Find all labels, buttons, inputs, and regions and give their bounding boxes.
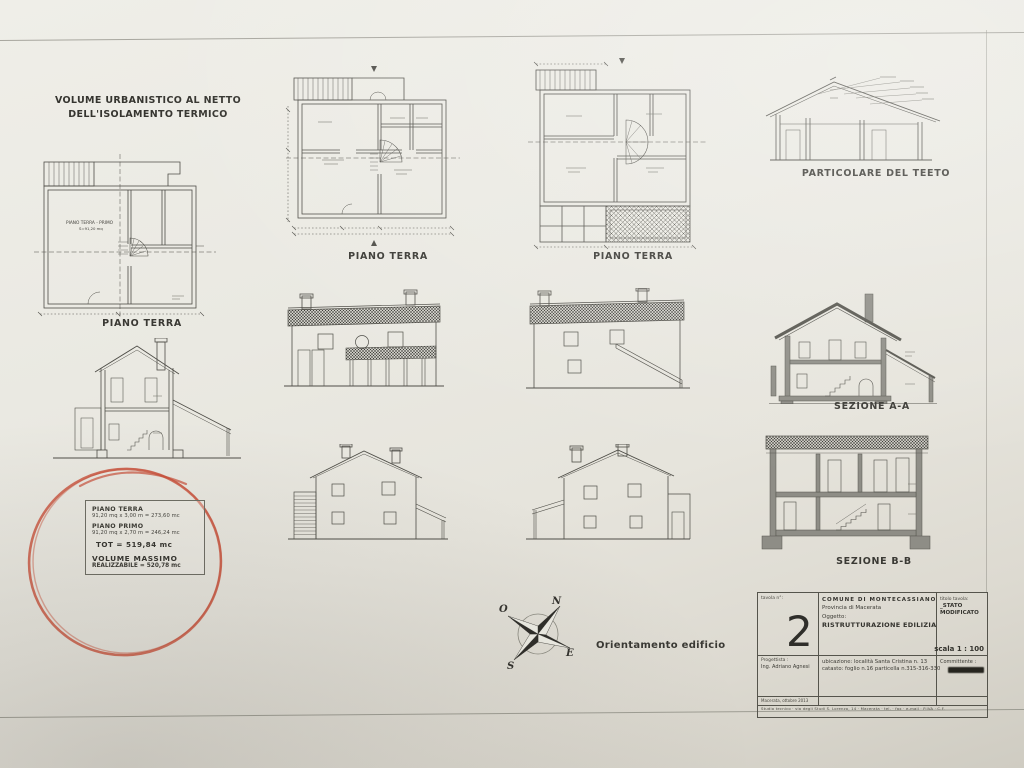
section-a-caption: SEZIONE A-A (817, 401, 927, 412)
volume-piano-primo-label: PIANO PRIMO (92, 523, 198, 530)
compass-east-label: E (565, 648, 574, 659)
section-b-caption: SEZIONE B-B (819, 556, 929, 567)
compass-rose: N E S O (494, 592, 586, 676)
section-a-drawing (763, 292, 941, 404)
section-marker-bottom (371, 240, 377, 246)
oggetto-value: RISTRUTTURAZIONE EDILIZIA (822, 621, 936, 629)
tavola-label: tavola n°: (761, 596, 783, 602)
section-b-drawing (758, 428, 936, 556)
committente-redacted-bar (948, 667, 984, 673)
floor-plan-volume: PIANO TERRA - PRIMO S=91,20 mq (30, 150, 220, 322)
heading-line1: VOLUME URBANISTICO AL NETTO (52, 94, 244, 108)
titolo-tavola-label: titolo tavola: (940, 597, 968, 603)
floor-plan-2 (282, 62, 464, 250)
titolo-tavola-value: _STATO MODIFICATO (940, 603, 987, 617)
elevation-side-2 (520, 444, 695, 552)
tiny-room-labels (318, 118, 428, 174)
volume-piano-primo-calc: 91,20 mq x 2,70 m = 246,24 mc (92, 530, 198, 536)
tiny-annotation (172, 296, 184, 299)
footer-date: Macerata, ottobre 2013 (761, 698, 808, 703)
catasto-text: catasto: foglio n.16 particella n.315-31… (822, 666, 940, 673)
roof-band (766, 436, 928, 449)
title-block-vline-1 (818, 593, 819, 705)
volume-piano-terra-label: PIANO TERRA (92, 506, 198, 513)
volume-max-value: REALIZZABILE = 520,78 mc (92, 563, 198, 569)
plan1-caption: PIANO TERRA (77, 318, 207, 329)
committente-label: Committente : (940, 659, 976, 665)
roof-detail-caption: PARTICOLARE DEL TEETO (791, 168, 961, 179)
sheet-heading: VOLUME URBANISTICO AL NETTO DELL'ISOLAME… (52, 94, 244, 122)
compass-south-label: S (507, 661, 514, 672)
plan3-caption: PIANO TERRA (573, 251, 693, 262)
tiny-annotation (153, 396, 162, 433)
volume-note-box: PIANO TERRA 91,20 mq x 3,00 m = 273,60 m… (85, 500, 205, 575)
progettista-value: Ing. Adriano Agnesi (761, 664, 810, 670)
roof-detail-drawing (760, 68, 950, 168)
tavola-number: 2 (786, 615, 813, 649)
compass-west-label: O (499, 604, 508, 615)
ubicazione-text: ubicazione: località Santa Cristina n. 1… (822, 659, 927, 666)
volume-max-label: VOLUME MASSIMO (92, 554, 198, 563)
tiny-roof-annotations (830, 77, 934, 99)
volume-piano-terra-calc: 91,20 mq x 3,00 m = 273,60 mc (92, 513, 198, 519)
oggetto-label: Oggetto: (822, 614, 846, 621)
title-block-hline-3 (758, 705, 987, 706)
volume-total: TOT = 519,84 mc (96, 540, 198, 549)
section-marker-top (371, 66, 377, 72)
section-marker-top (619, 58, 625, 64)
progettista-label: Progettista : (761, 658, 788, 664)
sheet-border-top (0, 32, 1024, 41)
compass-north-label: N (551, 596, 562, 607)
orientation-label: Orientamento edificio (596, 640, 746, 651)
comune-text: COMUNE DI MONTECASSIANO (822, 597, 936, 604)
heading-line2: DELL'ISOLAMENTO TERMICO (52, 108, 244, 122)
elevation-side-1 (286, 444, 450, 552)
title-block: tavola n°: 2 COMUNE DI MONTECASSIANO Pro… (757, 592, 988, 718)
provincia-text: Provincia di Macerata (822, 605, 881, 612)
architectural-sheet-photo: VOLUME URBANISTICO AL NETTO DELL'ISOLAME… (0, 0, 1024, 768)
elevation-front (282, 288, 446, 396)
section-left (45, 338, 245, 466)
floor-plan-3 (526, 58, 708, 250)
tiny-room-labels (566, 114, 664, 172)
plan2-caption: PIANO TERRA (328, 251, 448, 262)
scala-text: scala 1 : 100 (934, 645, 984, 654)
sheet-border-right (986, 30, 987, 593)
plan1-area-label: S=91,20 mq (79, 226, 103, 231)
footer-studio-line: Studio tecnico · via degli Studi S. Lore… (761, 707, 984, 712)
elevation-rear (522, 288, 694, 396)
